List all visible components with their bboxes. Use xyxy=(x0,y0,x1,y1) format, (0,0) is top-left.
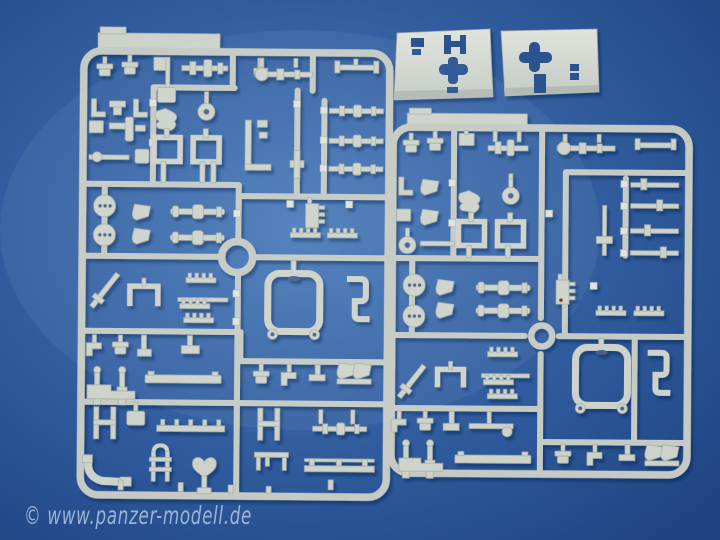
sprues-photo: © www.panzer-modell.de xyxy=(0,0,720,540)
watermark-text: © www.panzer-modell.de xyxy=(24,501,252,530)
photo-model-kit-sprues: © www.panzer-modell.de xyxy=(0,0,720,540)
